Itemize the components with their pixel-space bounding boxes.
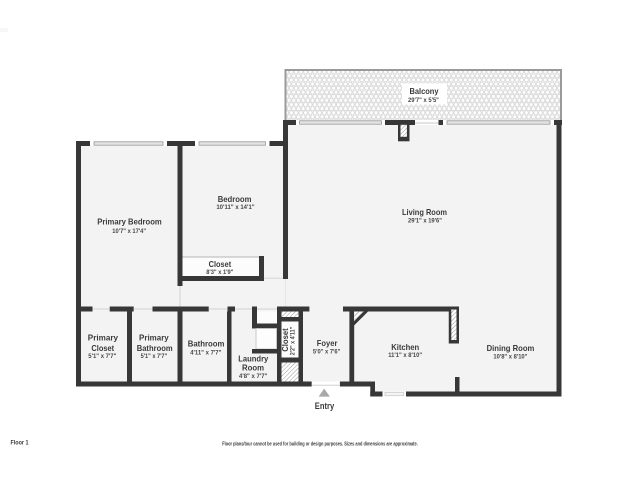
svg-text:Closet: Closet [280,328,290,352]
svg-text:Closet: Closet [209,259,232,269]
svg-text:Room: Room [242,362,264,372]
svg-text:Dining Room: Dining Room [487,343,535,353]
svg-text:Living Room: Living Room [402,207,447,217]
svg-text:8'3" x 1'9": 8'3" x 1'9" [206,269,233,276]
svg-text:10'8" x 8'10": 10'8" x 8'10" [493,354,527,361]
svg-text:Closet: Closet [91,343,114,353]
svg-text:11'1" x 8'10": 11'1" x 8'10" [388,352,422,359]
svg-text:2'2" x 4'11": 2'2" x 4'11" [289,327,296,356]
svg-text:4'11" x 7'7": 4'11" x 7'7" [190,350,221,357]
svg-text:29'7" x 5'5": 29'7" x 5'5" [408,97,439,104]
svg-text:10'11" x 14'1": 10'11" x 14'1" [216,204,254,211]
svg-text:Bathroom: Bathroom [137,343,173,353]
svg-text:5'1" x 7'7": 5'1" x 7'7" [141,353,168,360]
svg-text:5'1" x 7'7": 5'1" x 7'7" [88,353,116,360]
svg-text:29'1" x 19'6": 29'1" x 19'6" [408,217,442,224]
svg-text:Primary: Primary [139,333,169,343]
svg-text:Bedroom: Bedroom [218,194,252,204]
svg-text:Balcony: Balcony [409,86,438,96]
svg-text:10'7" x 17'4": 10'7" x 17'4" [112,228,146,235]
svg-text:Floor plans/tour cannot be use: Floor plans/tour cannot be used for buil… [222,441,418,447]
svg-text:Kitchen: Kitchen [391,342,419,352]
svg-text:5'0" x 7'6": 5'0" x 7'6" [313,348,341,355]
svg-text:Foyer: Foyer [317,338,338,348]
svg-text:Bathroom: Bathroom [188,338,225,348]
svg-text:Floor 1: Floor 1 [11,440,29,447]
svg-text:Primary Bedroom: Primary Bedroom [97,217,162,227]
svg-text:Entry: Entry [315,401,335,412]
svg-text:Primary: Primary [88,333,119,343]
svg-text:4'8" x 7'7": 4'8" x 7'7" [239,373,267,380]
